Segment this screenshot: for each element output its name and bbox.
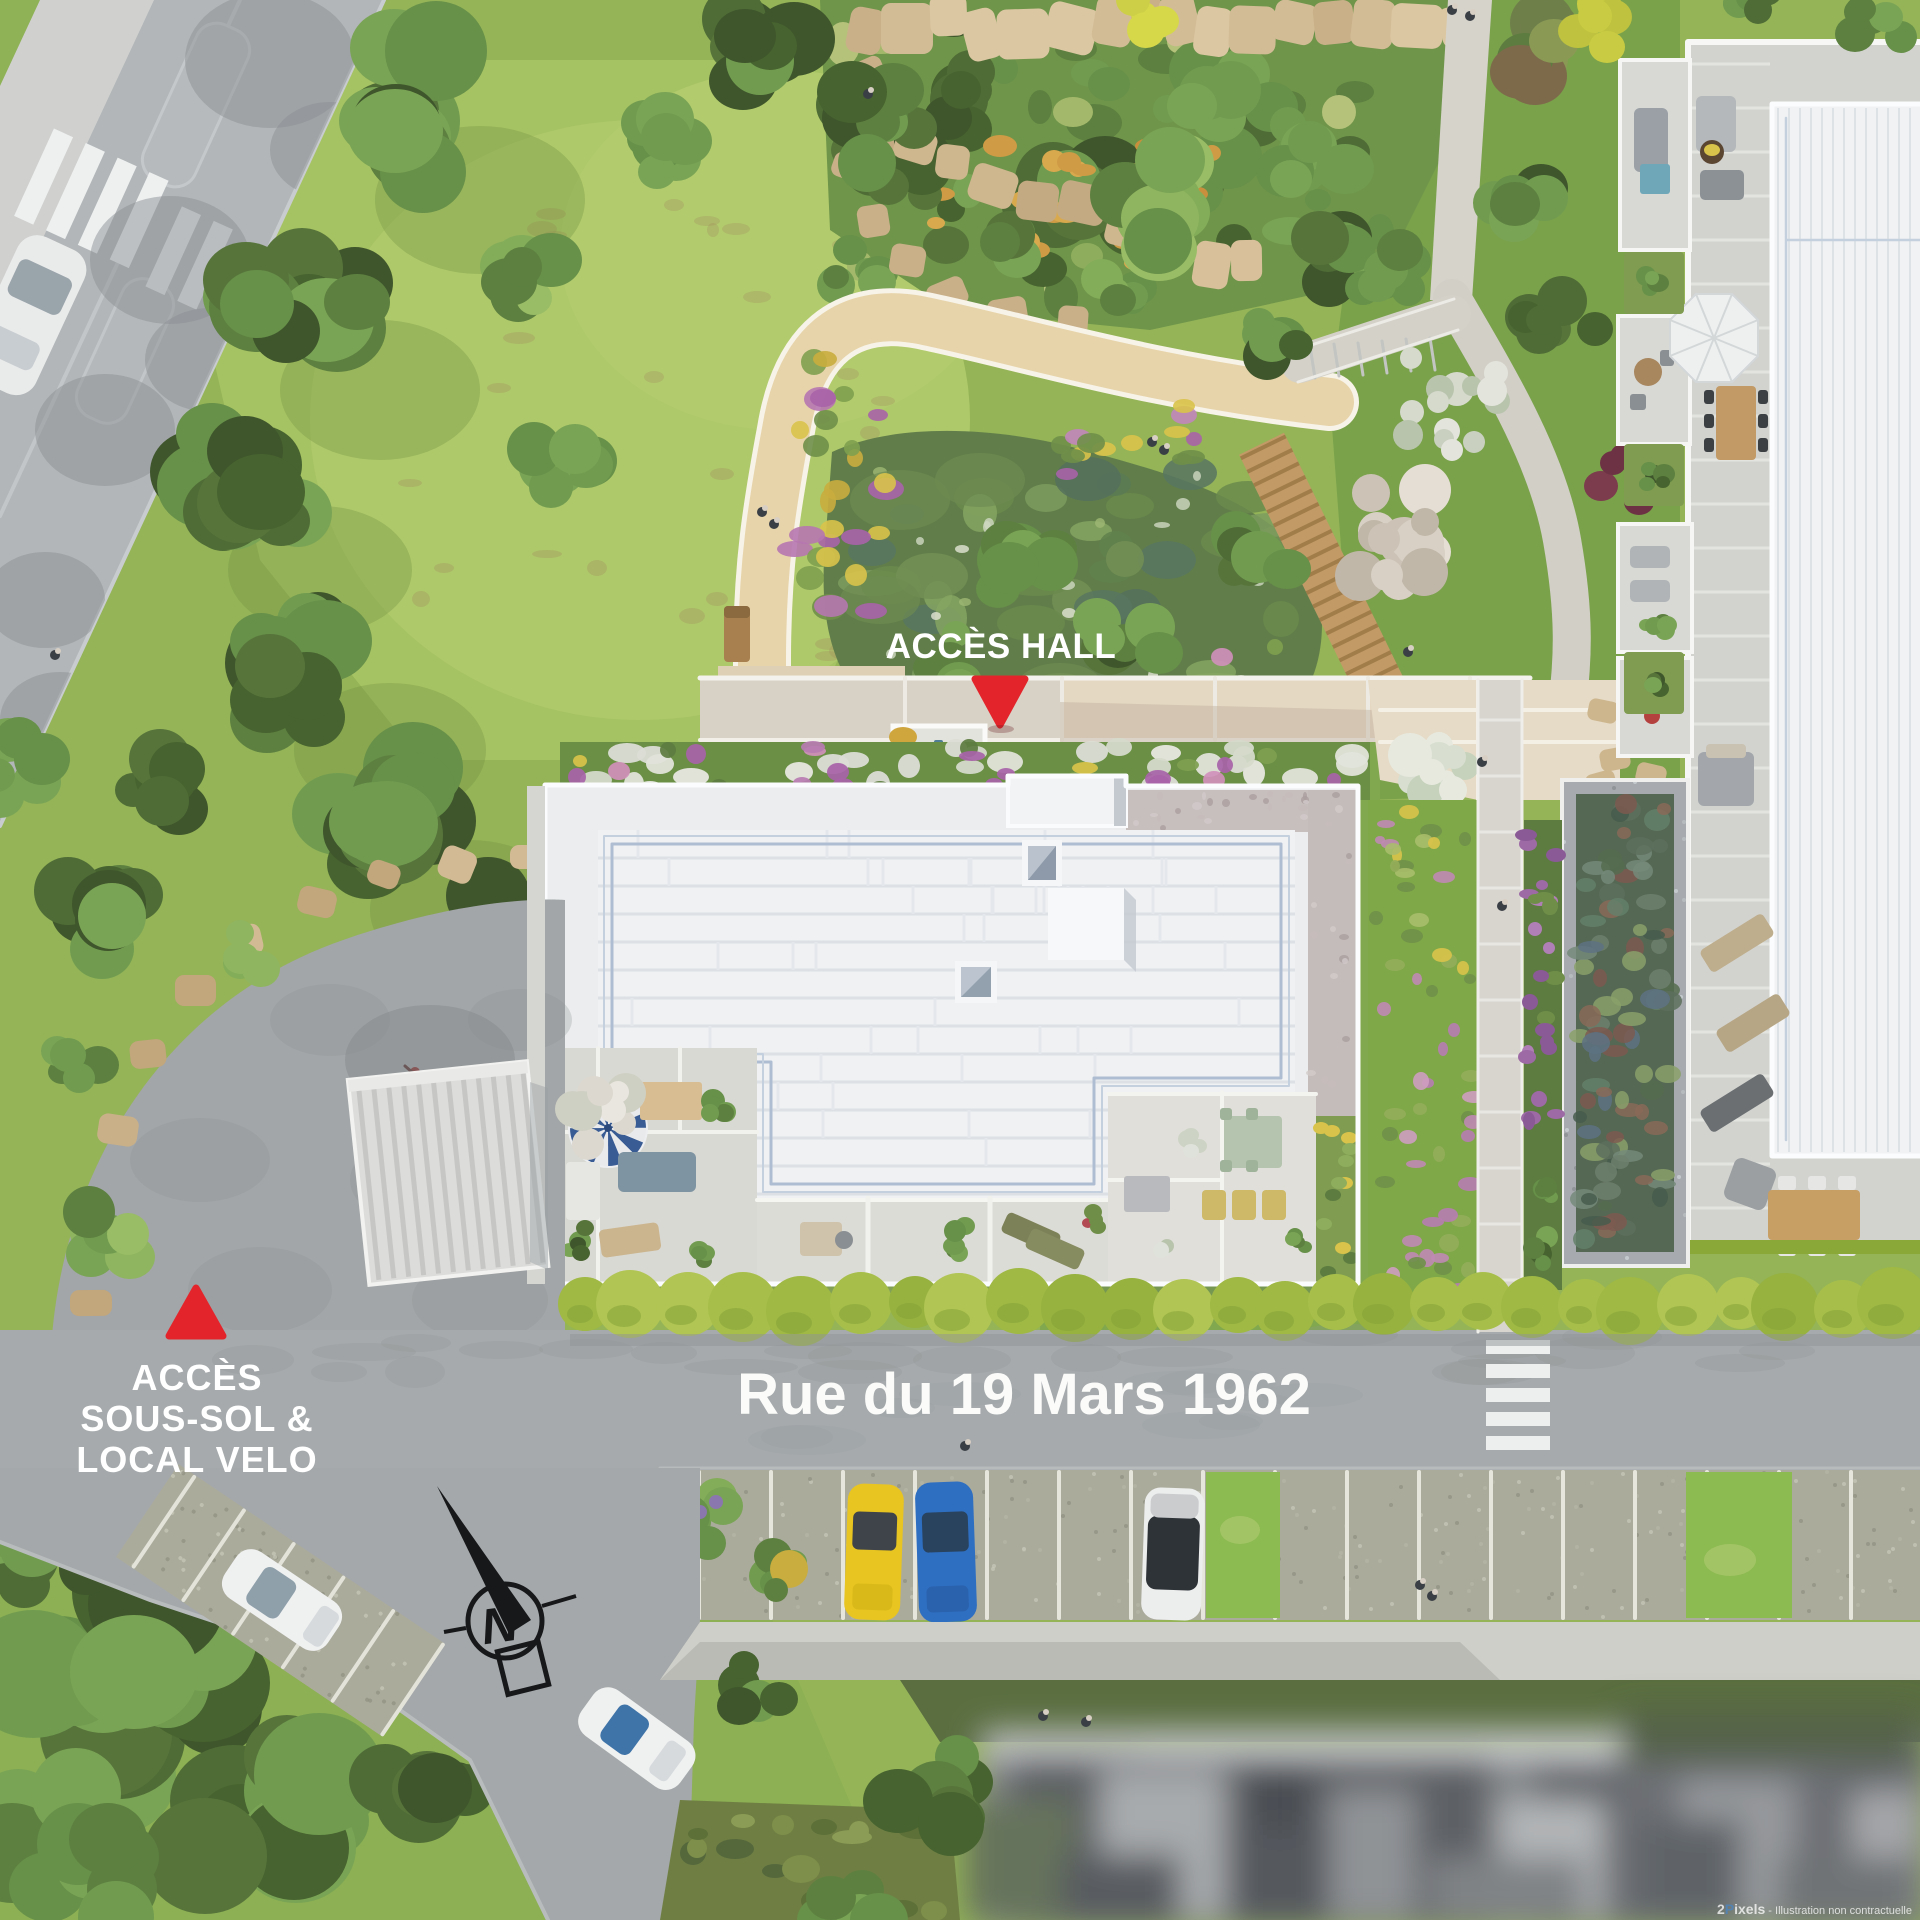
svg-text:ACCÈS: ACCÈS	[131, 1357, 262, 1398]
svg-text:SOUS-SOL &: SOUS-SOL &	[80, 1398, 313, 1439]
svg-text:Rue du 19 Mars 1962: Rue du 19 Mars 1962	[737, 1362, 1311, 1427]
svg-text:ACCÈS HALL: ACCÈS HALL	[886, 626, 1117, 666]
svg-text:LOCAL VELO: LOCAL VELO	[76, 1439, 317, 1480]
